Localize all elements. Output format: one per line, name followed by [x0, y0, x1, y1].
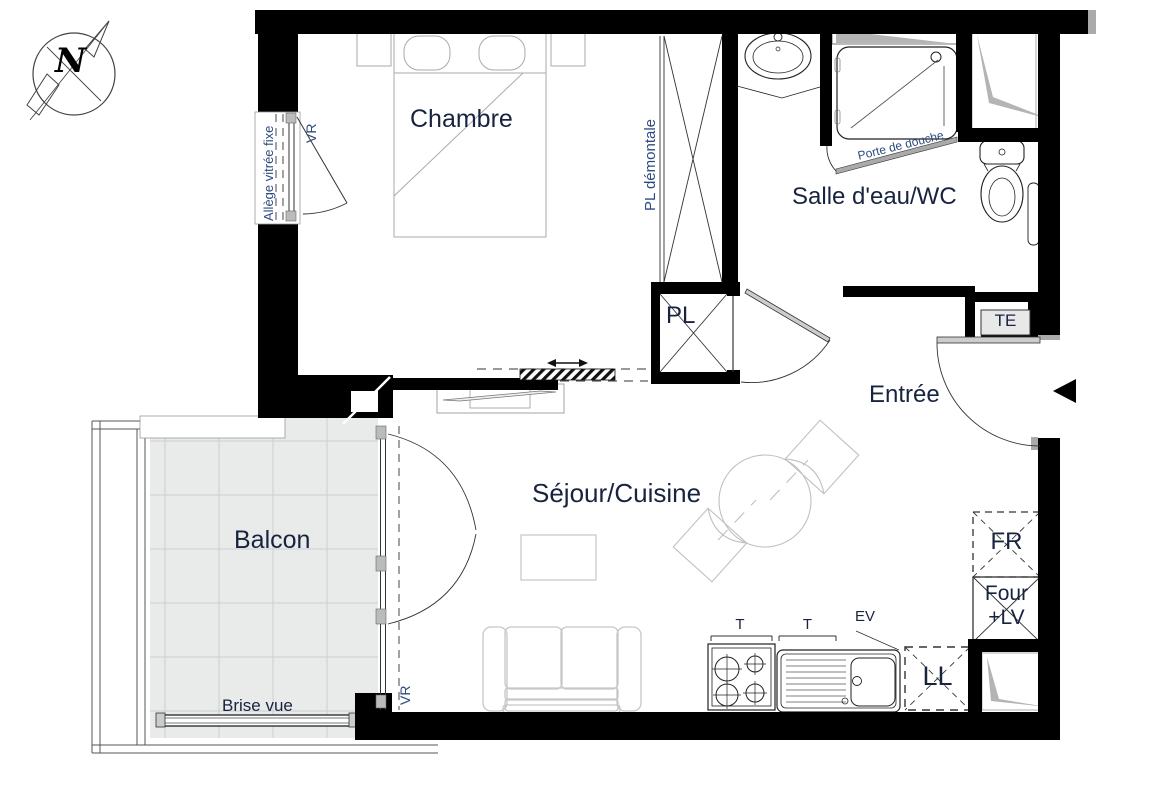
closet-pl-demontale	[660, 36, 722, 282]
balcony-step	[140, 416, 285, 438]
balcony-door	[376, 426, 476, 710]
dining-table	[673, 420, 858, 581]
floor-plan: Chambre Salle d'eau/WC Entrée Séjour/Cui…	[0, 0, 1151, 800]
label-pl-demontale: PL démontale	[642, 119, 659, 211]
towel-radiator	[1028, 183, 1039, 245]
label-t-stove: T	[708, 617, 772, 633]
sliding-door	[477, 359, 648, 381]
label-pl: PL	[666, 303, 695, 328]
room-label-entree: Entrée	[869, 382, 940, 407]
label-brise-vue: Brise vue	[222, 697, 293, 715]
floor-plan-drawing	[0, 0, 1151, 800]
room-label-balcon: Balcon	[234, 527, 310, 553]
kitchen-duct	[982, 653, 1047, 710]
nightstand-left	[357, 32, 391, 66]
label-allege-vitree: Allège vitrée fixe	[261, 126, 276, 221]
sofa	[483, 627, 641, 713]
label-te: TE	[981, 312, 1030, 330]
bath-duct	[972, 32, 1049, 130]
coffee-table	[521, 535, 596, 580]
kitchen-sink	[777, 650, 900, 712]
label-ll: LL	[905, 662, 970, 690]
label-fr: FR	[973, 529, 1040, 554]
entry-door	[937, 337, 1040, 446]
stove	[708, 644, 775, 710]
label-ev: EV	[855, 609, 875, 625]
label-vr-balcony: VR	[397, 686, 413, 705]
nightstand-right	[551, 32, 585, 66]
brise-vue-screen	[156, 713, 358, 727]
bed	[394, 32, 546, 237]
toilet	[980, 141, 1024, 222]
label-four: Four	[973, 583, 1040, 605]
compass-north-label: N	[55, 41, 86, 81]
washbasin	[737, 33, 820, 98]
entrance-arrow-icon	[1053, 379, 1076, 403]
label-t-sink: T	[779, 617, 836, 633]
wc-door	[741, 289, 830, 383]
room-label-chambre: Chambre	[410, 106, 513, 132]
label-vr-window: VR	[303, 124, 319, 143]
room-label-sejour: Séjour/Cuisine	[532, 480, 701, 507]
shower	[835, 47, 957, 139]
room-label-salle-eau: Salle d'eau/WC	[792, 184, 957, 209]
label-lv: +LV	[973, 607, 1040, 629]
